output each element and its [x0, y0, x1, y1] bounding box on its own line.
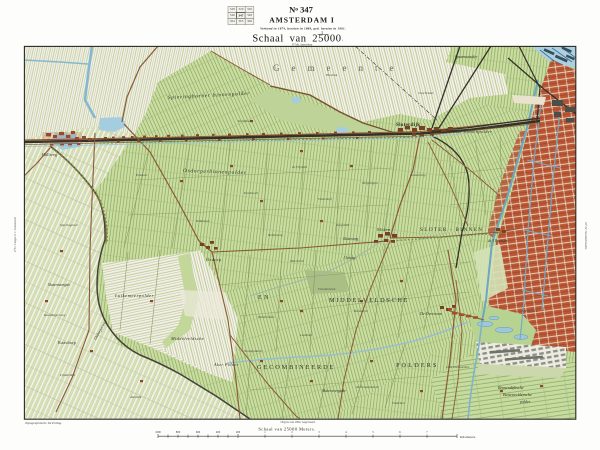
svg-text:Binnendijksche: Binnendijksche — [498, 385, 524, 390]
svg-text:Ruimzicht: Ruimzicht — [353, 309, 369, 313]
svg-text:Bos en Lommer: Bos en Lommer — [482, 125, 504, 129]
svg-text:de Vrijheid: de Vrijheid — [292, 165, 307, 169]
svg-text:330: 330 — [247, 7, 252, 11]
svg-text:365: 365 — [238, 19, 243, 23]
svg-text:600: 600 — [196, 431, 201, 434]
svg-text:Topographische Inrichting.: Topographische Inrichting. — [25, 421, 62, 425]
svg-text:348: 348 — [247, 13, 252, 17]
svg-text:Slatermeergde: Slatermeergde — [48, 283, 70, 287]
svg-text:1000: 1000 — [155, 431, 161, 434]
svg-text:MIDDELVELDSCHE: MIDDELVELDSCHE — [329, 297, 409, 304]
svg-text:De Overtoom: De Overtoom — [419, 311, 442, 316]
svg-text:Houtrak: Houtrak — [325, 73, 338, 77]
svg-text:SLOTER - BINNEN: SLOTER - BINNEN — [420, 227, 483, 233]
svg-text:Sloterweg: Sloterweg — [343, 237, 358, 241]
svg-text:Slatersvergade: Slatersvergade — [322, 388, 346, 393]
svg-text:Lutkemeerpolder: Lutkemeerpolder — [114, 293, 154, 298]
svg-text:Vredelust: Vredelust — [392, 401, 406, 405]
svg-text:400: 400 — [216, 431, 221, 434]
svg-text:Welgelegen: Welgelegen — [362, 181, 378, 185]
svg-text:Spaarnwouder: Spaarnwouder — [455, 55, 478, 59]
svg-text:Kerkbuurt: Kerkbuurt — [237, 119, 253, 123]
svg-text:N° Mir. Amsterdam: N° Mir. Amsterdam — [292, 43, 313, 46]
svg-text:347: 347 — [238, 13, 243, 17]
svg-text:GECOMBINEERDE: GECOMBINEERDE — [257, 364, 335, 371]
svg-text:52°22' Noorderbreedte: 52°22' Noorderbreedte — [584, 222, 588, 250]
svg-text:Landlust: Landlust — [299, 333, 313, 337]
svg-text:Akerdijk: Akerdijk — [129, 395, 142, 399]
svg-text:Middelveldsche: Middelveldsche — [170, 336, 204, 341]
svg-text:Vreedenhoek: Vreedenhoek — [318, 287, 336, 291]
svg-text:328: 328 — [230, 7, 235, 11]
svg-text:4°51' Lengte O.v. Greenwich: 4°51' Lengte O.v. Greenwich — [13, 217, 17, 252]
svg-text:EN: EN — [258, 295, 271, 301]
svg-text:Uitweg: Uitweg — [344, 255, 356, 260]
svg-text:polder: polder — [519, 399, 531, 404]
svg-text:Raasdorperweg: Raasdorperweg — [43, 313, 66, 317]
svg-text:800: 800 — [176, 431, 181, 434]
svg-text:Lijnderdijk: Lijnderdijk — [59, 373, 75, 377]
svg-text:Sloten: Sloten — [377, 227, 391, 232]
svg-text:Halfweg: Halfweg — [42, 152, 57, 157]
svg-text:de 3 Baarsjes: de 3 Baarsjes — [488, 239, 508, 243]
svg-text:Osdorp: Osdorp — [206, 257, 222, 262]
svg-text:Meerzicht: Meerzicht — [289, 259, 305, 263]
svg-text:Wildeman: Wildeman — [196, 219, 210, 223]
svg-text:366: 366 — [247, 19, 252, 23]
svg-text:Vredenhof: Vredenhof — [318, 197, 333, 201]
svg-text:No 347: No 347 — [289, 5, 314, 15]
svg-text:346: 346 — [230, 13, 235, 17]
svg-text:Raasdorp: Raasdorp — [58, 340, 76, 345]
svg-text:Zorgvlied: Zorgvlied — [336, 223, 349, 227]
svg-text:364: 364 — [230, 19, 235, 23]
svg-text:de Eenzaamheid: de Eenzaamheid — [356, 385, 379, 389]
svg-text:Eendracht: Eendracht — [243, 191, 259, 195]
svg-text:Overbraker: Overbraker — [418, 91, 434, 95]
svg-text:Buitenveldersche: Buitenveldersche — [503, 392, 532, 397]
svg-text:Polanen: Polanen — [135, 173, 148, 177]
svg-text:AMSTERDAM I: AMSTERDAM I — [269, 16, 334, 25]
svg-text:Sloterdijk: Sloterdijk — [396, 123, 420, 128]
svg-text:Kilometers.: Kilometers. — [460, 435, 476, 439]
svg-text:1: 1 — [321, 30, 323, 35]
svg-text:Spieringmeer: Spieringmeer — [60, 223, 79, 227]
svg-text:POLDERS: POLDERS — [396, 362, 438, 369]
svg-text:Verkend in 1874, herzien in 18: Verkend in 1874, herzien in 1889, ged. h… — [260, 26, 346, 30]
svg-text:329: 329 — [238, 7, 243, 11]
svg-text:Gemeente: Gemeente — [273, 63, 405, 73]
svg-text:Buitenzorg: Buitenzorg — [268, 233, 283, 237]
svg-text:Schaal van 25000 Meters.: Schaal van 25000 Meters. — [258, 427, 315, 432]
svg-text:Uitgave van 1904. Gegraveerd.: Uitgave van 1904. Gegraveerd. — [280, 421, 315, 424]
svg-text:Vondelpark: Vondelpark — [522, 309, 538, 313]
svg-text:Oud Leeuwarden: Oud Leeuwarden — [446, 365, 470, 369]
svg-text:Weltevreden: Weltevreden — [258, 315, 275, 319]
svg-text:200: 200 — [236, 431, 241, 434]
svg-text:Nooitgedacht: Nooitgedacht — [243, 349, 263, 353]
svg-text:Rustenburg: Rustenburg — [409, 173, 426, 177]
svg-text:Aker Polder: Aker Polder — [213, 362, 239, 367]
